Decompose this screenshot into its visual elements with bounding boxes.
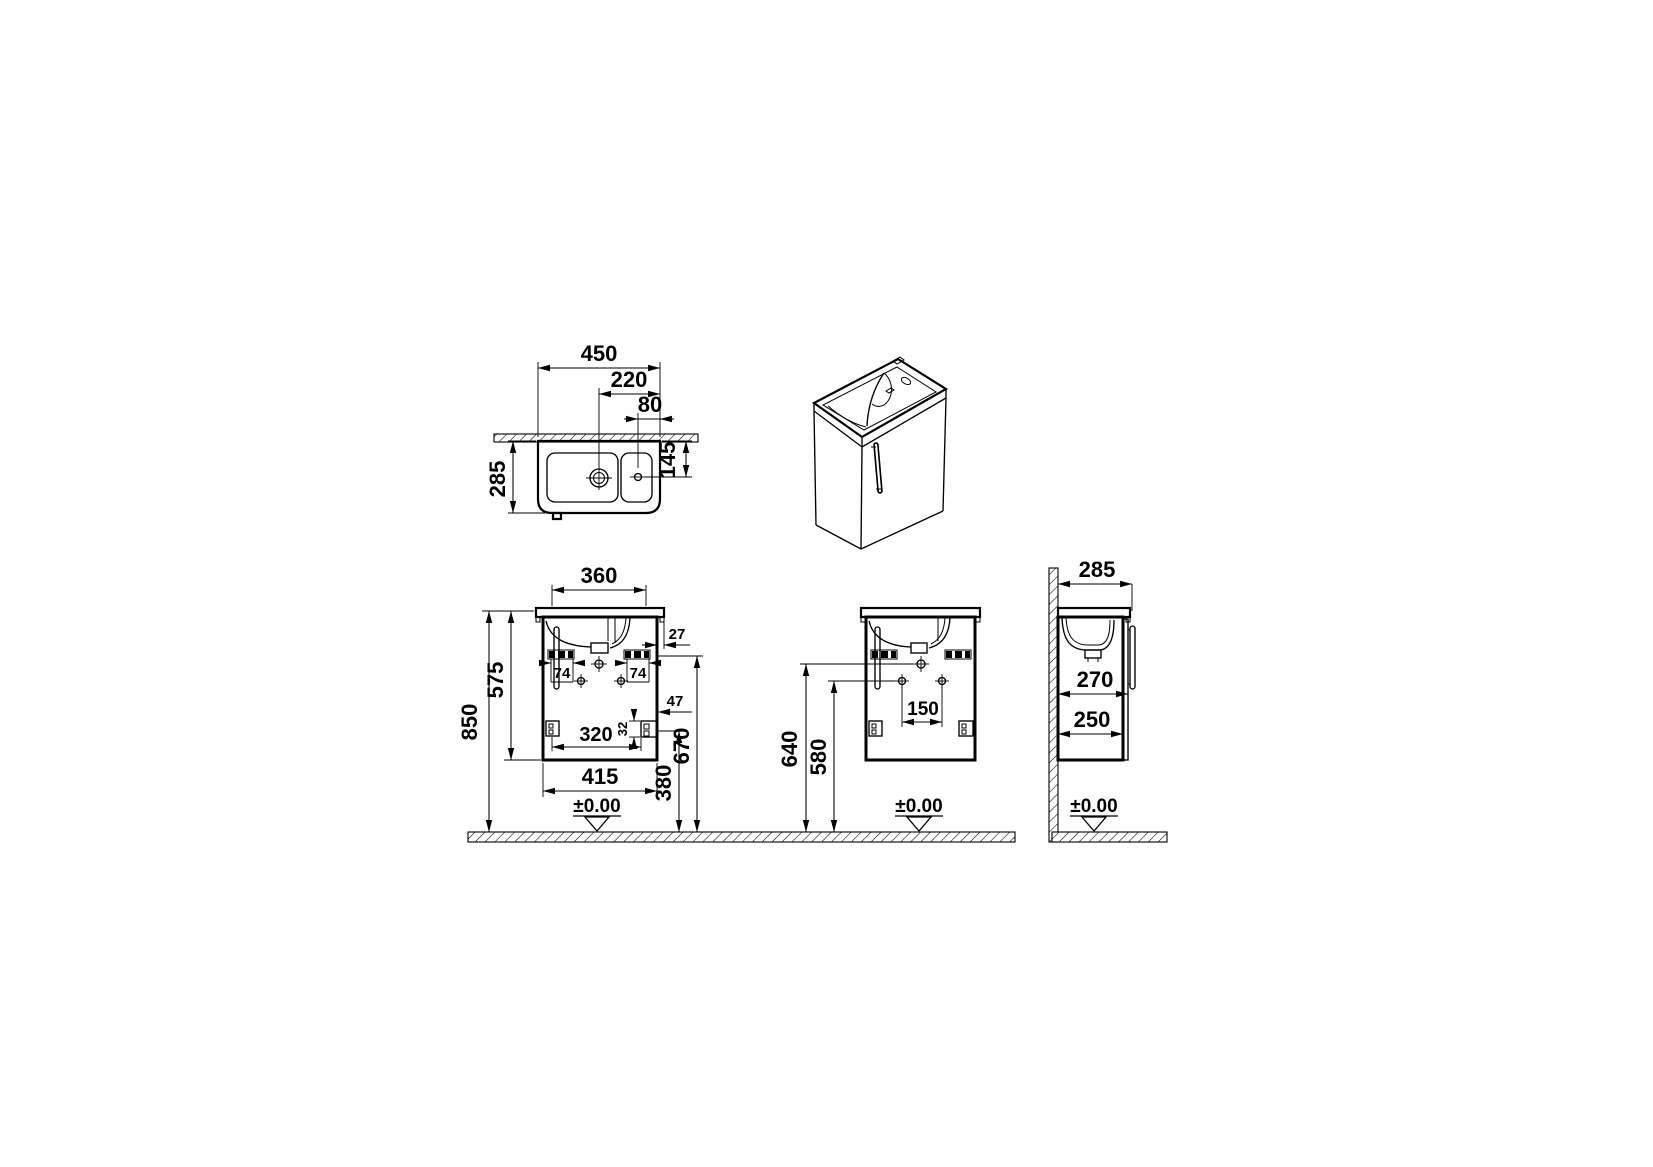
wall-bracket-left	[548, 650, 574, 659]
dim-total-height: 850	[457, 704, 482, 741]
iso-door-handle	[871, 445, 881, 491]
installation-view: 150 640 580 ±0.00	[777, 608, 980, 832]
basin-bowl-section-install	[869, 618, 950, 653]
iso-overflow-slot	[886, 388, 894, 393]
floor-section-side	[1052, 832, 1167, 842]
dim-top-width: 450	[581, 341, 618, 366]
dim-hinge-height: 380	[651, 765, 676, 802]
dim-basin-width: 360	[581, 563, 618, 588]
hinge-plate-right	[641, 721, 657, 737]
hinge-plate-right-install	[959, 721, 973, 736]
dim-side-depth: 285	[1079, 557, 1116, 582]
drain-hole	[586, 466, 612, 490]
dim-top-hole-height: 640	[777, 731, 802, 768]
technical-drawing-page: 450 220 80 285 145	[0, 0, 1653, 1167]
dim-rim-overhang: 27	[669, 626, 686, 643]
dim-hinge-inset: 47	[667, 693, 684, 710]
dim-bracket-left: 74	[554, 665, 571, 682]
hinge-plate-left-install	[869, 721, 882, 736]
wall-bracket-right-install	[945, 650, 971, 659]
door-handle-side	[1128, 626, 1135, 689]
floor-level-front: ±0.00	[573, 796, 621, 831]
mounting-holes-front	[574, 656, 628, 688]
dim-hinge-span: 320	[579, 724, 612, 746]
basin-bowl-side-section	[1062, 618, 1114, 662]
floor-level-label-front: ±0.00	[573, 796, 620, 817]
dim-bracket-right: 74	[630, 665, 647, 682]
dim-cabinet-height: 575	[483, 662, 508, 699]
floor-level-label-install: ±0.00	[895, 796, 942, 817]
isometric-view	[814, 357, 946, 549]
dim-top-depth: 285	[485, 461, 510, 498]
door-handle-plan	[553, 513, 561, 519]
floor-level-side: ±0.00	[1070, 796, 1118, 831]
dim-side-hole-height: 580	[806, 739, 831, 776]
dim-cabinet-depth: 250	[1074, 707, 1111, 732]
floor-section-hatch	[468, 832, 1015, 842]
iso-tap-hole	[900, 376, 912, 386]
front-view: 360 850 575 27 74 74 670	[457, 563, 703, 832]
dim-hole-span: 150	[907, 699, 939, 720]
dim-bracket-left-box: 74	[540, 659, 584, 682]
wall-bracket-right	[624, 650, 650, 659]
mounting-holes-install	[895, 656, 949, 688]
top-view: 450 220 80 285 145	[485, 341, 698, 519]
dim-tap-from-wall: 145	[655, 442, 680, 479]
tap-deck-plan	[621, 453, 652, 502]
wall-bracket-left-install	[871, 650, 897, 659]
dim-cabinet-width: 415	[582, 764, 619, 789]
dim-tap-offset: 80	[638, 392, 662, 417]
dim-hinge-plate: 32	[615, 722, 630, 736]
cabinet-body-install	[866, 617, 975, 760]
iso-rim-edge	[814, 398, 946, 447]
side-view: 285 270 250 ±0.00	[1049, 557, 1167, 842]
floor-level-install: ±0.00	[895, 796, 943, 831]
dim-bracket-height: 670	[669, 728, 694, 765]
tap-hole	[630, 474, 646, 481]
floor-level-label-side: ±0.00	[1070, 796, 1117, 817]
dim-drain-offset: 220	[611, 367, 648, 392]
dim-depth-with-door: 270	[1077, 667, 1114, 692]
vanity-unit-dimension-drawing: 450 220 80 285 145	[0, 0, 1653, 1167]
hinge-plate-left	[546, 721, 559, 736]
